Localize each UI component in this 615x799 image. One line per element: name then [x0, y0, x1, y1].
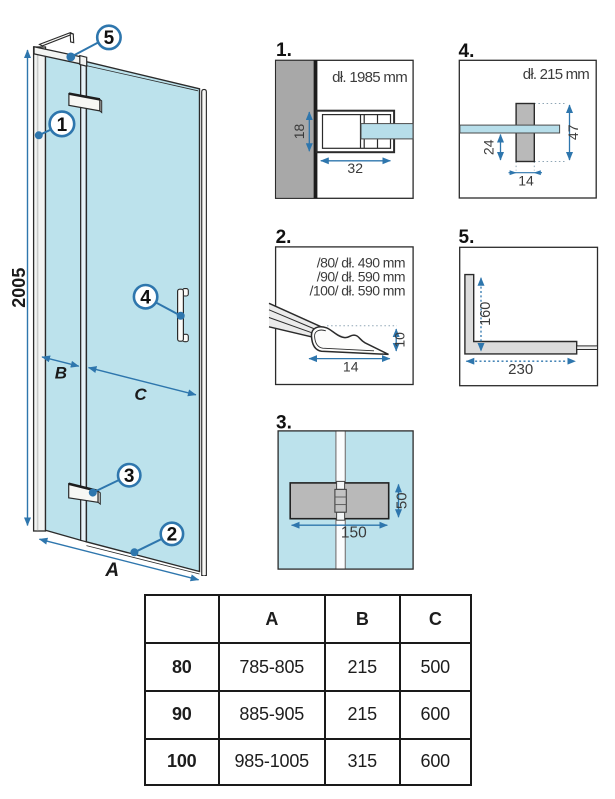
- svg-text:10: 10: [392, 332, 408, 348]
- svg-text:2.: 2.: [276, 227, 292, 248]
- svg-text:B: B: [55, 364, 67, 383]
- svg-text:dł. 1985 mm: dł. 1985 mm: [332, 69, 407, 86]
- svg-text:18: 18: [291, 124, 307, 140]
- svg-text:2005: 2005: [9, 268, 29, 308]
- svg-text:1: 1: [57, 115, 68, 136]
- svg-text:14: 14: [518, 173, 534, 189]
- svg-text:160: 160: [478, 302, 494, 326]
- svg-text:dł. 215 mm: dł. 215 mm: [523, 66, 589, 83]
- svg-text:3: 3: [124, 466, 135, 487]
- svg-text:/100/ dł. 590 mm: /100/ dł. 590 mm: [310, 283, 405, 299]
- svg-text:2: 2: [167, 525, 178, 546]
- svg-text:47: 47: [565, 124, 581, 140]
- svg-text:32: 32: [347, 160, 363, 176]
- svg-text:5: 5: [104, 28, 115, 49]
- svg-text:C: C: [134, 385, 147, 404]
- svg-text:50: 50: [394, 492, 411, 509]
- svg-text:24: 24: [481, 139, 497, 155]
- svg-text:1.: 1.: [276, 40, 292, 61]
- svg-text:4.: 4.: [459, 41, 475, 62]
- svg-text:150: 150: [341, 525, 367, 542]
- svg-text:14: 14: [343, 359, 359, 375]
- svg-text:4: 4: [140, 288, 151, 309]
- svg-text:230: 230: [508, 361, 533, 378]
- svg-text:5.: 5.: [459, 227, 475, 248]
- svg-text:A: A: [104, 560, 119, 581]
